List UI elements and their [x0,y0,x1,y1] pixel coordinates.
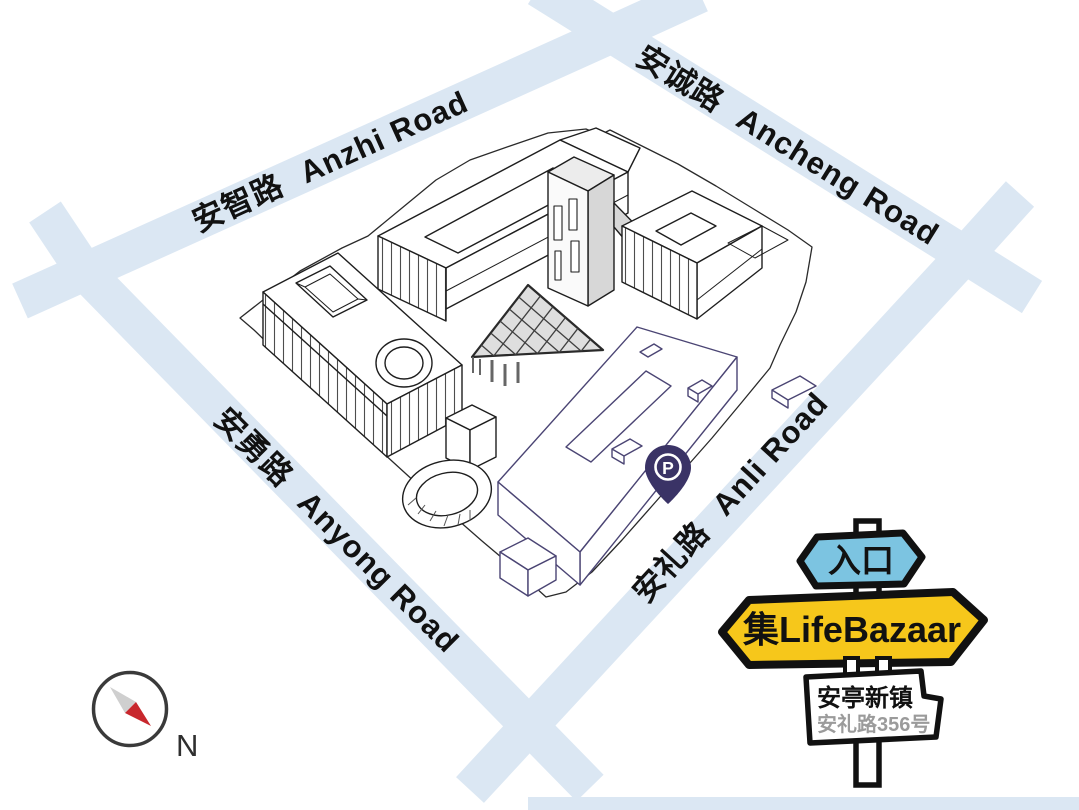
canopy-legs [492,360,518,386]
compass-icon: N [94,673,199,764]
site-map-illustration: 安智路Anzhi Road 安诚路Ancheng Road 安勇路Anyong … [0,0,1079,810]
compass-north-label: N [176,728,198,763]
brand-sign: 集LifeBazaar [722,592,984,665]
address-sign-place: 安亭新镇 [817,684,913,712]
brand-sign-label: 集LifeBazaar [742,609,961,650]
location-map: 安智路Anzhi Road 安诚路Ancheng Road 安勇路Anyong … [0,0,1079,810]
signpost: 入口 集LifeBazaar 安亭新镇 安礼路356号 [722,521,984,785]
east-building [622,191,788,319]
road-label-anyong: 安勇路Anyong Road [207,401,465,659]
parking-pin-label: P [662,458,674,478]
address-sign: 安亭新镇 安礼路356号 [806,671,941,743]
entrance-sign: 入口 [800,533,922,586]
entrance-sign-label: 入口 [828,542,894,579]
address-sign-street: 安礼路356号 [817,712,930,736]
